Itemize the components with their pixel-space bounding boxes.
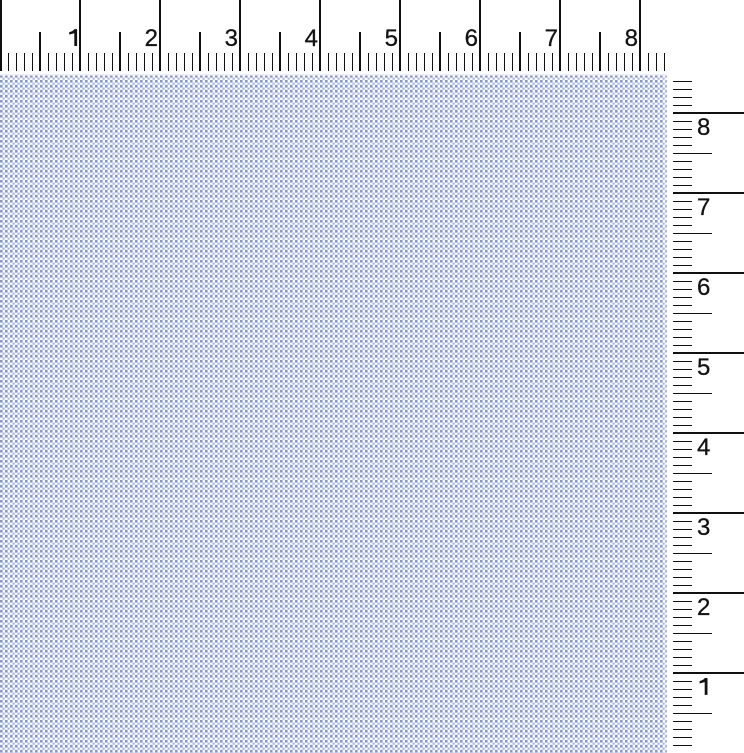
svg-text:7: 7	[697, 194, 710, 221]
svg-text:6: 6	[697, 274, 710, 301]
svg-text:4: 4	[305, 25, 318, 52]
svg-text:5: 5	[697, 354, 710, 381]
svg-text:8: 8	[697, 114, 710, 141]
svg-text:4: 4	[697, 434, 710, 461]
svg-text:2: 2	[697, 594, 710, 621]
svg-text:6: 6	[465, 25, 478, 52]
svg-text:8: 8	[625, 25, 638, 52]
svg-text:2: 2	[145, 25, 158, 52]
svg-text:5: 5	[385, 25, 398, 52]
svg-text:7: 7	[545, 25, 558, 52]
svg-text:3: 3	[225, 25, 238, 52]
svg-text:3: 3	[697, 514, 710, 541]
